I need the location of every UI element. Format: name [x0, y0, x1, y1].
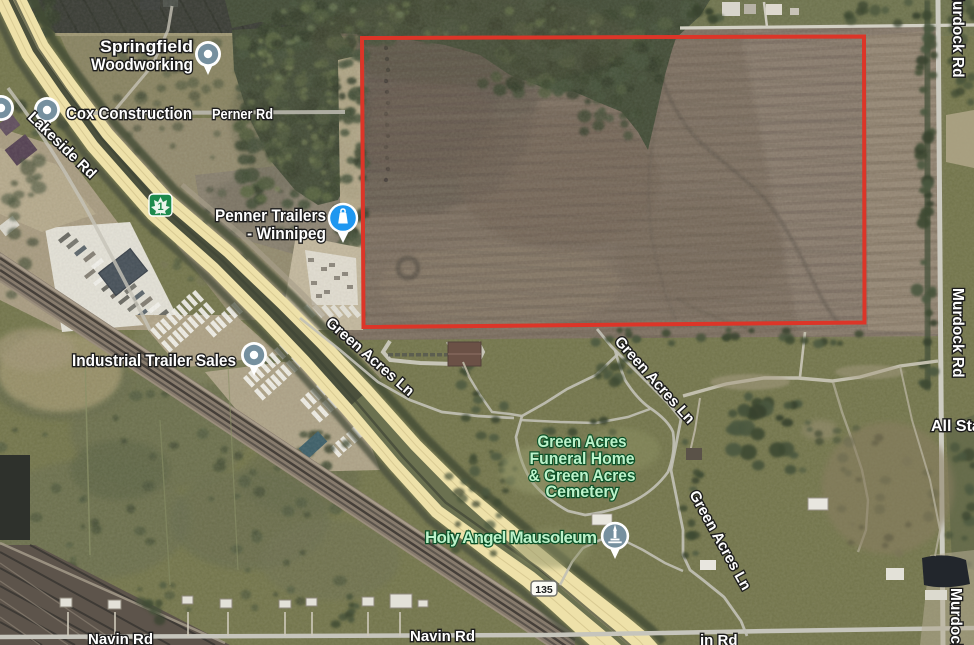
svg-text:Murdock Rd: Murdock Rd — [949, 288, 966, 378]
svg-text:Industrial Trailer Sales: Industrial Trailer Sales — [72, 352, 236, 370]
svg-text:Murdock Rd: Murdock Rd — [949, 0, 966, 78]
svg-text:Penner Trailers: Penner Trailers — [215, 207, 326, 225]
svg-text:Navin Rd: Navin Rd — [410, 628, 475, 645]
svg-text:1: 1 — [157, 201, 163, 213]
svg-text:Murdock Rd: Murdock Rd — [947, 588, 964, 645]
svg-text:Navin Rd: Navin Rd — [88, 631, 153, 645]
svg-text:Perner Rd: Perner Rd — [212, 106, 273, 123]
svg-text:Woodworking: Woodworking — [91, 56, 193, 74]
svg-text:Cemetery: Cemetery — [546, 483, 620, 501]
svg-text:Funeral Home: Funeral Home — [530, 450, 635, 468]
svg-text:- Winnipeg: - Winnipeg — [247, 225, 326, 243]
svg-text:All Sta: All Sta — [931, 418, 974, 435]
svg-text:Cox Construction: Cox Construction — [66, 105, 192, 123]
svg-text:135: 135 — [535, 584, 553, 596]
svg-text:Holy Angel Mausoleum: Holy Angel Mausoleum — [425, 528, 597, 547]
svg-text:Springfield: Springfield — [100, 38, 193, 56]
svg-text:Green Acres: Green Acres — [538, 433, 627, 451]
svg-text:in Rd: in Rd — [700, 632, 738, 645]
